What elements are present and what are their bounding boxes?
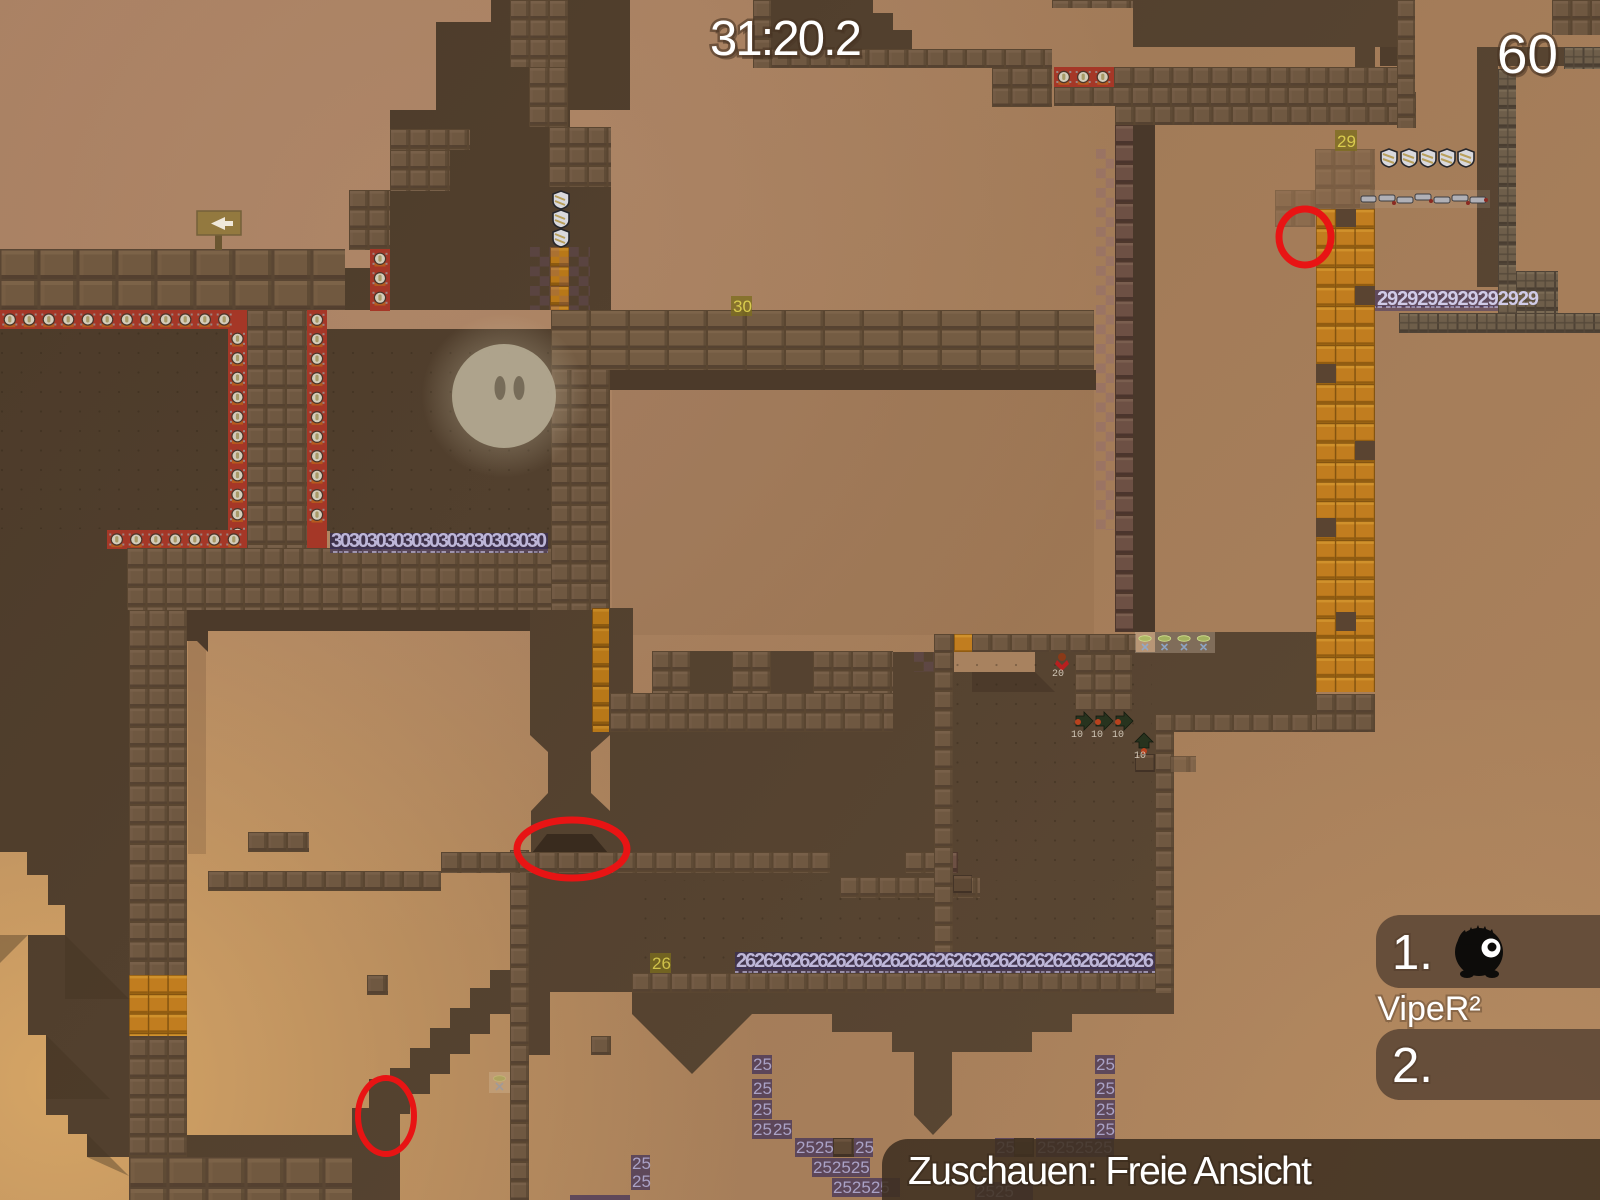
svg-text:60: 60 [1497,23,1558,85]
svg-text:25: 25 [1096,1120,1115,1139]
svg-text:252525: 252525 [813,1158,870,1177]
svg-text:252525: 252525 [833,1178,890,1197]
svg-text:29: 29 [1337,132,1356,151]
svg-text:30: 30 [733,297,752,316]
svg-text:10: 10 [1071,730,1083,741]
svg-text:Zuschauen: Freie Ansicht: Zuschauen: Freie Ansicht [908,1150,1312,1193]
svg-text:25: 25 [1096,1079,1115,1098]
svg-text:25: 25 [753,1120,772,1139]
svg-text:10: 10 [1134,751,1146,762]
svg-text:25: 25 [1096,1055,1115,1074]
svg-text:25: 25 [753,1079,772,1098]
svg-text:VipeR²: VipeR² [1377,990,1480,1028]
svg-text:25: 25 [632,1154,651,1173]
svg-text:25: 25 [753,1055,772,1074]
svg-text:10: 10 [1091,730,1103,741]
svg-text:2.: 2. [1392,1039,1433,1093]
svg-text:10: 10 [1112,730,1124,741]
svg-text:1.: 1. [1392,926,1433,980]
svg-text:26: 26 [652,954,671,973]
svg-text:20: 20 [1052,669,1064,680]
svg-text:25: 25 [632,1172,651,1191]
svg-text:31:20.2: 31:20.2 [710,12,862,66]
svg-text:25: 25 [855,1138,874,1157]
svg-text:25: 25 [773,1120,792,1139]
svg-text:2525: 2525 [796,1138,834,1157]
svg-text:25: 25 [1096,1100,1115,1119]
svg-text:25: 25 [753,1100,772,1119]
